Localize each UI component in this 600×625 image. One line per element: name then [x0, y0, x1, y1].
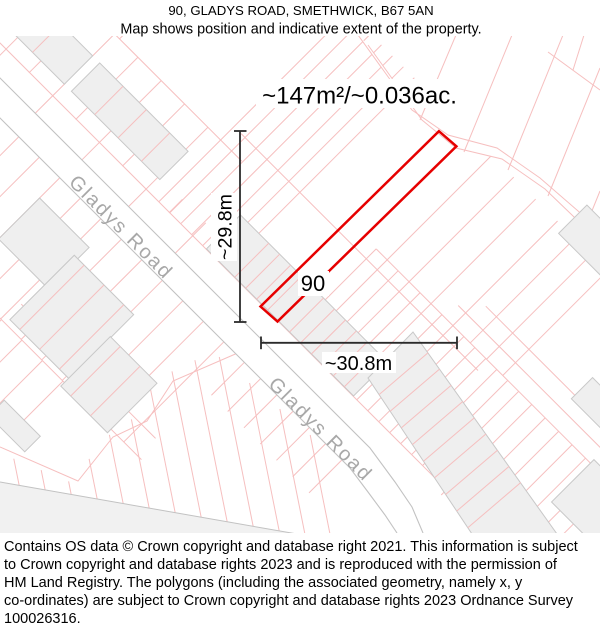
svg-text:HM Land Registry. The polygons: HM Land Registry. The polygons (includin… [4, 575, 523, 591]
svg-text:90: 90 [301, 271, 325, 296]
svg-text:to Crown copyright and databas: to Crown copyright and database rights 2… [4, 557, 558, 573]
svg-text:~30.8m: ~30.8m [325, 353, 392, 375]
svg-text:Map shows position and indicat: Map shows position and indicative extent… [120, 22, 481, 38]
svg-text:~29.8m: ~29.8m [214, 194, 236, 260]
svg-text:100026316.: 100026316. [4, 611, 81, 625]
svg-text:co-ordinates) are subject to C: co-ordinates) are subject to Crown copyr… [4, 593, 574, 609]
svg-text:Contains OS data © Crown copyr: Contains OS data © Crown copyright and d… [4, 539, 578, 555]
svg-text:~147m²/~0.036ac.: ~147m²/~0.036ac. [262, 83, 457, 110]
svg-text:90, GLADYS ROAD, SMETHWICK, B6: 90, GLADYS ROAD, SMETHWICK, B67 5AN [168, 3, 433, 18]
